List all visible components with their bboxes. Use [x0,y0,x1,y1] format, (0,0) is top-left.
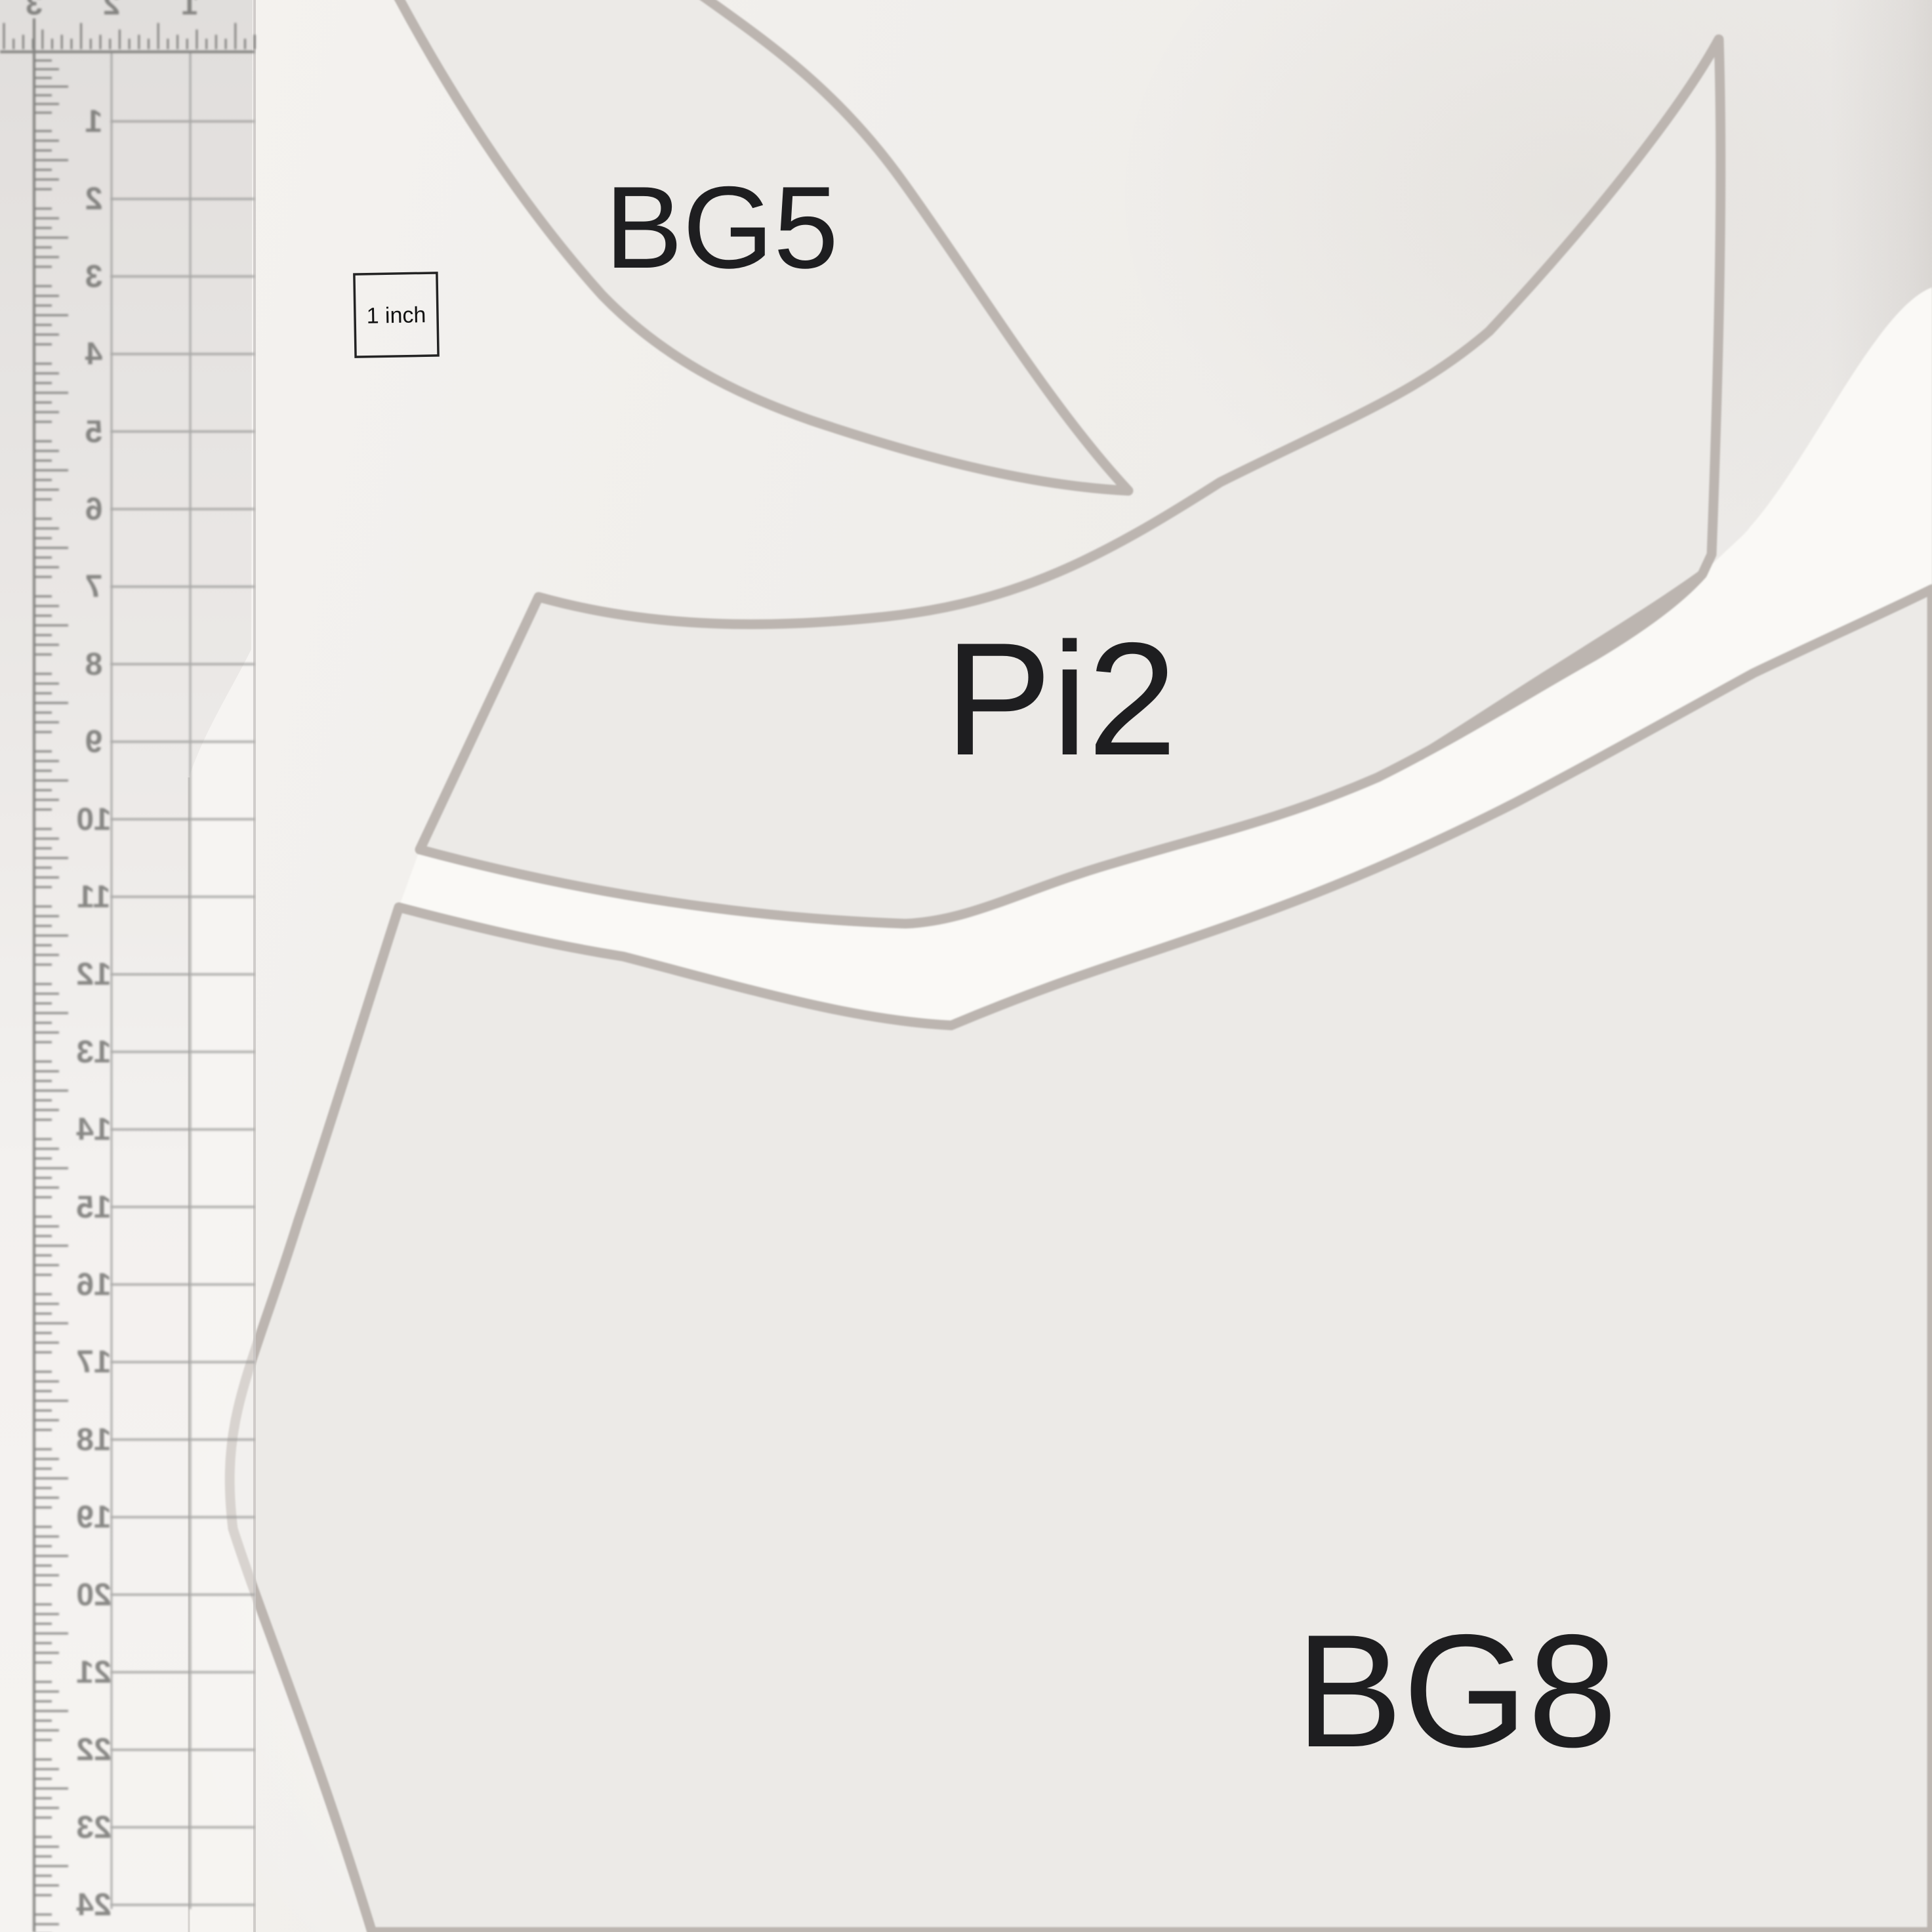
svg-text:12: 12 [76,957,111,992]
svg-text:16: 16 [76,1267,111,1302]
label-bg5: BG5 [605,162,838,293]
svg-text:2: 2 [103,0,120,21]
svg-text:9: 9 [85,725,103,760]
svg-text:3: 3 [26,0,43,21]
pattern-scene: BG5 Pi2 BG8 1 inch 321123456789101112131… [0,0,1932,1932]
svg-text:17: 17 [76,1345,111,1380]
svg-text:14: 14 [76,1113,112,1147]
svg-text:18: 18 [76,1422,111,1457]
svg-text:7: 7 [85,569,103,604]
svg-text:22: 22 [76,1733,111,1767]
label-bg8: BG8 [1296,1601,1617,1780]
photo-of-pattern-sheet: BG5 Pi2 BG8 1 inch 321123456789101112131… [0,0,1932,1932]
svg-text:5: 5 [85,415,103,449]
svg-text:2: 2 [85,182,103,216]
svg-text:11: 11 [77,880,111,915]
svg-text:8: 8 [85,647,103,682]
svg-text:21: 21 [76,1655,111,1690]
svg-text:13: 13 [76,1035,111,1069]
svg-text:10: 10 [76,802,111,837]
svg-text:23: 23 [76,1810,111,1845]
svg-text:1: 1 [182,0,199,21]
svg-text:4: 4 [85,337,102,372]
one-inch-text: 1 inch [366,302,426,329]
svg-text:24: 24 [76,1888,112,1923]
svg-text:1: 1 [85,104,103,139]
svg-text:20: 20 [76,1578,111,1613]
label-pi2: Pi2 [945,609,1177,789]
acrylic-ruler: 3211234567891011121314151617181920212223… [0,0,256,1932]
svg-text:15: 15 [76,1190,111,1225]
svg-text:6: 6 [85,492,103,527]
svg-text:19: 19 [76,1500,111,1535]
svg-text:3: 3 [85,259,103,294]
